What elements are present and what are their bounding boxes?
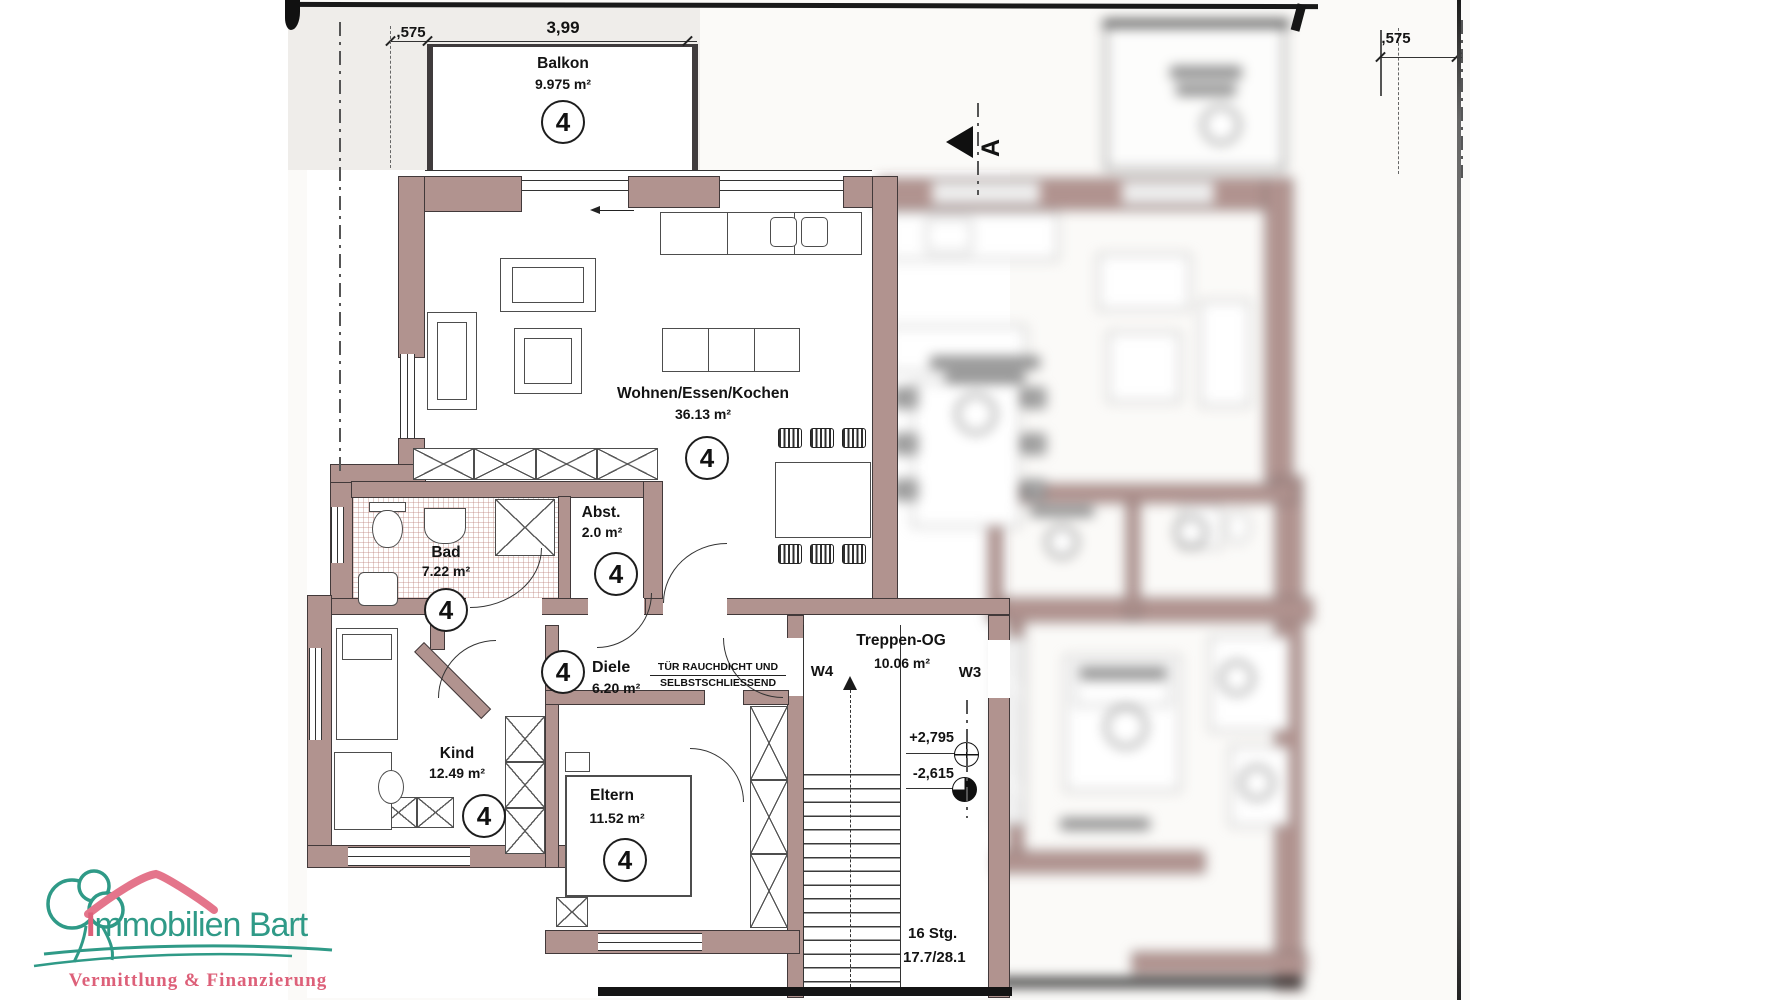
dimension-label: ,575 — [396, 24, 425, 42]
reference-line — [339, 22, 341, 474]
wardrobe-cell — [505, 808, 545, 854]
level-leader — [906, 788, 956, 789]
island-divider — [754, 328, 755, 372]
section-marker-arrow-icon — [946, 126, 973, 158]
wardrobe-cell — [505, 762, 545, 808]
level-upper-label: +2,795 — [884, 730, 954, 747]
unit-number-circle: 4 — [685, 436, 729, 480]
room-area-diele: 6.20 m² — [592, 680, 640, 697]
stair-treads — [804, 774, 900, 995]
kitchen-counter — [660, 212, 862, 255]
wardrobe-cell — [556, 897, 588, 927]
coffee-table-inner — [512, 267, 584, 303]
unit-number-circle: 4 — [603, 838, 647, 882]
room-area-wohnen: 36.13 m² — [675, 406, 731, 423]
dining-table — [775, 462, 871, 538]
dimension-line — [390, 41, 697, 42]
reference-line — [1461, 20, 1463, 178]
party-wall — [872, 176, 898, 612]
island-divider — [708, 328, 709, 372]
shower-tray — [358, 572, 398, 606]
room-name-abst: Abst. — [582, 504, 621, 523]
wardrobe-cell — [536, 448, 597, 480]
wardrobe-kid — [505, 716, 545, 854]
window — [348, 847, 470, 866]
balcony-wall — [427, 44, 698, 47]
balcony-wall — [427, 44, 433, 170]
sofa-seat — [437, 322, 467, 400]
level-marker-filled-icon — [952, 777, 977, 802]
door-label-w4: W4 — [811, 663, 834, 681]
toilet — [372, 510, 403, 548]
wardrobe-cell — [417, 797, 454, 828]
window — [598, 933, 702, 951]
door-label-w3: W3 — [959, 664, 982, 682]
door-note-line1: TÜR RAUCHDICHT UND — [650, 660, 786, 676]
stairs-dim-label: 17.7/28.1 — [903, 949, 966, 967]
scan-white-strip — [700, 6, 1470, 170]
room-name-bad: Bad — [431, 544, 460, 563]
unit-number-circle: 4 — [541, 100, 585, 144]
unit-number-circle: 4 — [424, 588, 468, 632]
room-area-abst: 2.0 m² — [582, 524, 622, 541]
door-note: TÜR RAUCHDICHT UND SELBSTSCHLIESSEND — [650, 660, 786, 690]
sink-bowl — [770, 217, 797, 247]
dimension-label: 3,99 — [546, 18, 579, 38]
floor-plan-canvas: ,575 3,99 ,575 A Balkon 9.975 m² 4 Wohne… — [0, 0, 1778, 1000]
kitchen-island — [662, 328, 800, 372]
desk-chair — [378, 770, 404, 804]
stair-direction-arrow-icon — [843, 676, 857, 690]
wardrobe-cell — [750, 854, 788, 928]
wardrobe-parents — [750, 706, 788, 928]
section-marker-label: A — [976, 139, 1006, 157]
room-area-treppe: 10.06 m² — [874, 655, 930, 672]
reference-line — [1398, 28, 1399, 174]
level-lower-label: -2,615 — [884, 766, 954, 783]
chair — [778, 428, 802, 448]
chair — [842, 428, 866, 448]
west-wall — [398, 176, 425, 358]
room-area-eltern: 11.52 m² — [589, 810, 644, 827]
nightstand — [565, 752, 590, 772]
unit-number-circle: 4 — [594, 552, 638, 596]
logo-subtitle: Vermittlung & Finanzierung — [69, 970, 328, 992]
scan-bottom-cut — [598, 987, 1012, 996]
chair — [778, 544, 802, 564]
entry-arrow-icon — [590, 206, 600, 214]
door-opening-w4 — [787, 638, 804, 696]
dimension-label: ,575 — [1381, 30, 1410, 48]
room-name-treppe: Treppen-OG — [856, 632, 946, 651]
scan-right-edge — [1457, 0, 1461, 1000]
bed-kid-pillow — [342, 634, 392, 660]
wardrobe-cell — [750, 706, 788, 780]
washbasin — [424, 508, 466, 544]
room-name-diele: Diele — [592, 658, 630, 677]
company-logo: Immobilien Bart Vermittlung & Finanzieru… — [30, 860, 360, 1000]
room-name-wohnen: Wohnen/Essen/Kochen — [617, 385, 789, 404]
sink-bowl — [801, 217, 828, 247]
wall-pier — [628, 176, 720, 208]
level-leader — [906, 753, 958, 754]
room-area-bad: 7.22 m² — [422, 563, 470, 580]
window — [400, 354, 415, 442]
unit-number-circle: 4 — [541, 650, 585, 694]
level-axis-line — [966, 700, 968, 818]
balcony-wall — [692, 44, 698, 170]
wardrobe-cell — [750, 780, 788, 854]
bath-storage-divider — [558, 496, 571, 602]
room-name-balkon: Balkon — [537, 55, 589, 74]
wardrobe-living — [413, 448, 658, 480]
side-table-inner — [524, 338, 572, 384]
counter-divider — [727, 212, 728, 255]
wardrobe-cell — [413, 448, 474, 480]
wardrobe-parents-corner — [556, 897, 588, 927]
room-area-kind: 12.49 m² — [429, 765, 485, 782]
chair — [842, 544, 866, 564]
chair — [810, 544, 834, 564]
room-area-balkon: 9.975 m² — [535, 76, 591, 93]
stair-walk-line — [850, 690, 851, 992]
stair-stringer — [900, 625, 901, 995]
wardrobe-cell — [597, 448, 658, 480]
door-opening-w3 — [988, 640, 1010, 698]
room-name-eltern: Eltern — [590, 787, 634, 806]
room-name-kind: Kind — [440, 745, 474, 764]
stairs-count-label: 16 Stg. — [908, 925, 957, 943]
bath-north-wall — [351, 481, 663, 498]
wardrobe-cell — [505, 716, 545, 762]
logo-title: Immobilien Bart — [86, 906, 307, 945]
window — [309, 648, 322, 740]
reference-line — [390, 26, 391, 168]
unit-number-circle: 4 — [462, 794, 506, 838]
entry-arrow-icon — [598, 210, 634, 211]
chair — [810, 428, 834, 448]
dimension-line — [1380, 57, 1462, 58]
wardrobe-cell — [474, 448, 535, 480]
door-note-line2: SELBSTSCHLIESSEND — [650, 676, 786, 690]
window — [331, 507, 344, 563]
